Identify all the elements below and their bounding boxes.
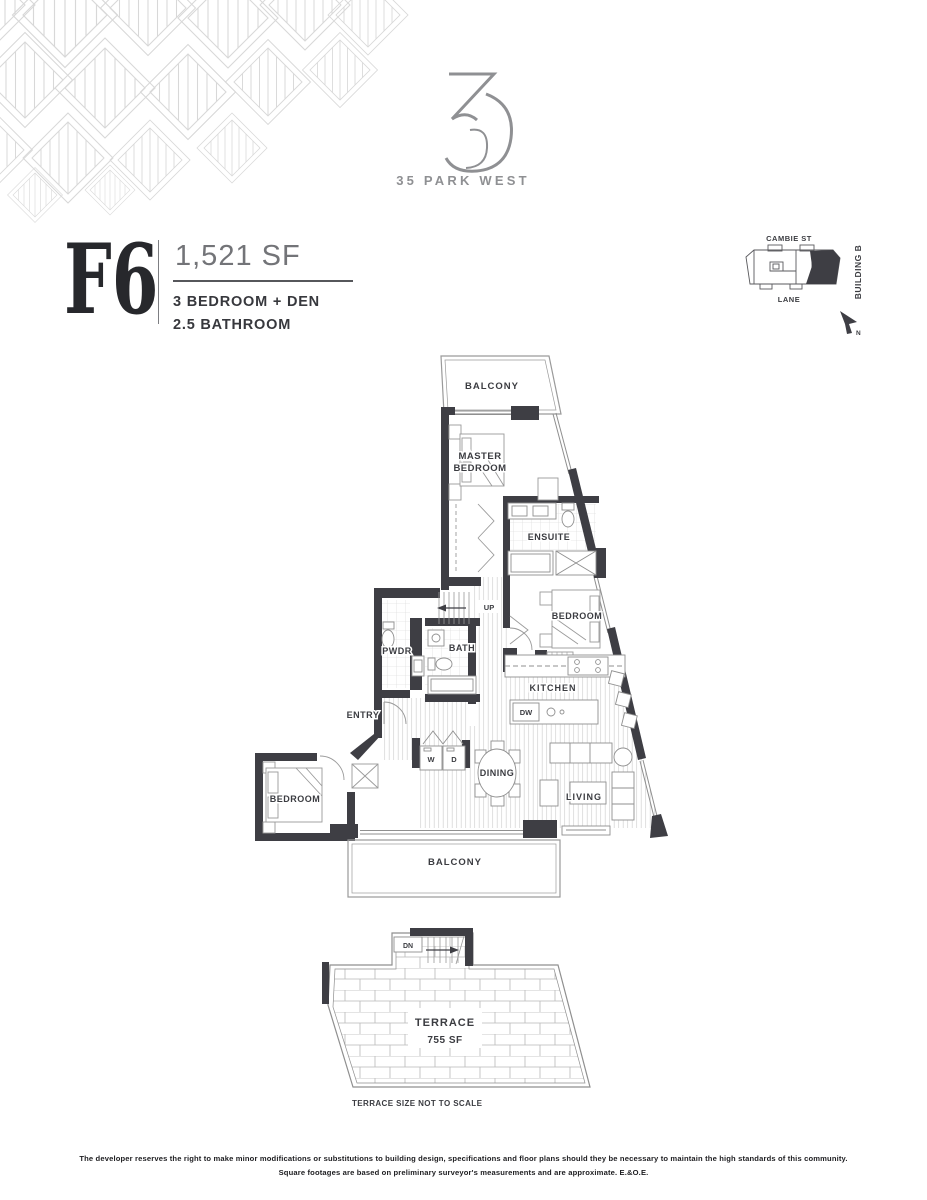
- unit-info-block: F6 1,521 SF 3 BEDROOM + DEN 2.5 BATHROOM: [64, 236, 353, 337]
- disclaimer-line2: Square footages are based on preliminary…: [0, 1166, 927, 1180]
- sheet-artwork: 35 PARK WEST CAMBIE ST LANE BUILDING B N: [0, 0, 927, 1200]
- unit-details: 1,521 SF 3 BEDROOM + DEN 2.5 BATHROOM: [173, 236, 353, 337]
- stairs-up-label: UP: [484, 603, 494, 612]
- terrace-label: TERRACE: [415, 1017, 475, 1029]
- site-plan: CAMBIE ST LANE BUILDING B N: [746, 234, 863, 337]
- terrace-area-label: 755 SF: [427, 1035, 462, 1046]
- disclaimer-line1: The developer reserves the right to make…: [0, 1152, 927, 1166]
- bath-label: BATH: [449, 643, 475, 653]
- street-top-label: CAMBIE ST: [766, 234, 812, 243]
- ensuite-label: ENSUITE: [528, 532, 571, 542]
- unit-code: F6: [64, 236, 124, 324]
- balcony-bottom-label: BALCONY: [428, 857, 482, 868]
- dining-label: DINING: [480, 768, 515, 778]
- north-label: N: [856, 330, 861, 337]
- balcony-bottom: [348, 840, 560, 897]
- dishwasher-label: DW: [520, 708, 533, 717]
- washer-label: W: [427, 755, 435, 764]
- deco-diamond-pattern: [0, 0, 408, 223]
- unit-bedrooms: 3 BEDROOM + DEN: [173, 291, 353, 314]
- brand-logo: 35 PARK WEST: [396, 74, 530, 188]
- main-floor-plan: BALCONY: [255, 356, 668, 897]
- kitchen-label: KITCHEN: [530, 683, 577, 693]
- stairs-down-label: DN: [403, 943, 413, 950]
- terrace-note: TERRACE SIZE NOT TO SCALE: [352, 1099, 483, 1108]
- dryer-label: D: [451, 755, 457, 764]
- master-bedroom-label-line2: BEDROOM: [453, 463, 506, 474]
- bedroom-right-label: BEDROOM: [552, 611, 603, 621]
- rule-line: [173, 280, 353, 282]
- brand-name: 35 PARK WEST: [396, 173, 530, 188]
- unit-area: 1,521 SF: [173, 238, 353, 273]
- unit-bathrooms: 2.5 BATHROOM: [173, 314, 353, 337]
- bedroom-left-label: BEDROOM: [270, 794, 321, 804]
- disclaimer: The developer reserves the right to make…: [0, 1152, 927, 1181]
- unit-location-highlight: [806, 250, 840, 284]
- floorplan-sheet: 35 PARK WEST CAMBIE ST LANE BUILDING B N: [0, 0, 927, 1200]
- entry-label: ENTRY: [347, 710, 380, 720]
- balcony-top-label: BALCONY: [465, 381, 519, 392]
- powder-label: PWDR: [382, 646, 412, 656]
- north-arrow-icon: N: [840, 311, 861, 337]
- living-label: LIVING: [566, 792, 602, 802]
- master-bedroom-label-line1: MASTER: [458, 451, 501, 462]
- brand-mark-35-glyph: [446, 74, 511, 171]
- street-bottom-label: LANE: [778, 295, 800, 304]
- terrace-plan: DN TERRACE 755 SF TERRACE SIZE NOT TO SC…: [322, 928, 590, 1108]
- building-label: BUILDING B: [853, 245, 863, 300]
- master-closet: [456, 504, 494, 572]
